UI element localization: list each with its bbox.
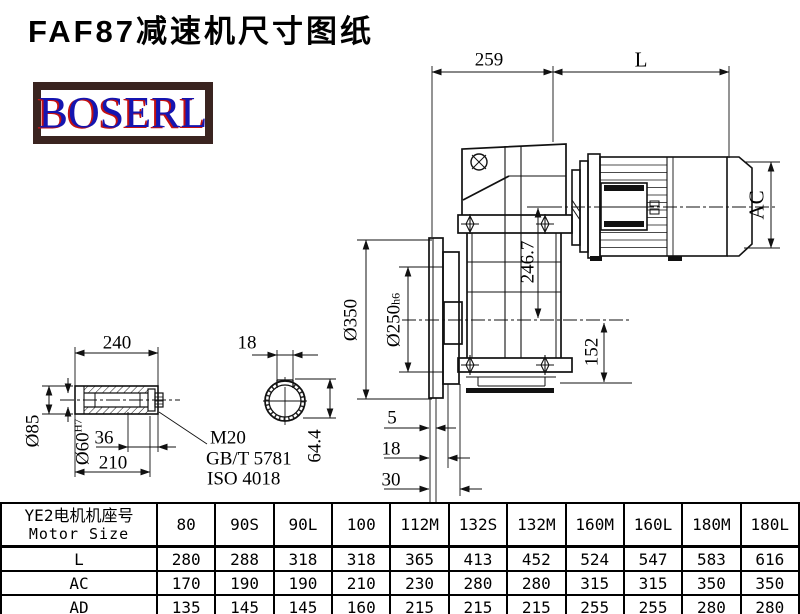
spec-value-cell: 280: [682, 595, 740, 614]
spec-table-row: AC170190190210230280280315315350350: [1, 571, 799, 595]
dim-bore-diameter: Ø60H7: [73, 419, 92, 465]
spec-value-cell: 215: [449, 595, 507, 614]
spec-value-cell: 280: [157, 547, 215, 572]
spec-value-cell: 255: [624, 595, 682, 614]
label-bolt-standard-iso: ISO 4018: [207, 470, 280, 489]
spec-value-cell: 280: [449, 571, 507, 595]
motor-size-header-cn: YE2电机机座号: [2, 506, 156, 525]
spec-value-cell: 280: [741, 595, 799, 614]
dim-flange-step3: 30: [382, 471, 401, 490]
spec-value-cell: 230: [390, 571, 448, 595]
motor-size-column-header: 80: [157, 503, 215, 547]
motor-size-column-header: 160L: [624, 503, 682, 547]
spec-value-cell: 190: [215, 571, 273, 595]
motor-size-column-header: 132S: [449, 503, 507, 547]
motor-size-column-header: 132M: [507, 503, 565, 547]
motor-size-column-header: 100: [332, 503, 390, 547]
spec-value-cell: 280: [507, 571, 565, 595]
motor-size-column-header: 180L: [741, 503, 799, 547]
spec-table-row: L280288318318365413452524547583616: [1, 547, 799, 572]
spec-value-cell: 315: [624, 571, 682, 595]
spec-value-cell: 318: [274, 547, 332, 572]
spec-row-label: AC: [1, 571, 157, 595]
dim-housing-width: 259: [475, 51, 504, 70]
spec-value-cell: 365: [390, 547, 448, 572]
dim-spigot-diameter: Ø250h6: [385, 293, 404, 347]
dim-motor-diameter: AC: [747, 190, 768, 219]
spec-value-cell: 215: [390, 595, 448, 614]
spec-value-cell: 350: [741, 571, 799, 595]
spec-table-body: L280288318318365413452524547583616AC1701…: [1, 547, 799, 614]
spec-value-cell: 583: [682, 547, 740, 572]
spec-table-row: AD135145145160215215215255255280280: [1, 595, 799, 614]
spec-value-cell: 318: [332, 547, 390, 572]
spec-value-cell: 170: [157, 571, 215, 595]
dim-output-axis-height: 152: [583, 338, 602, 367]
motor-size-column-header: 180M: [682, 503, 740, 547]
spec-value-cell: 616: [741, 547, 799, 572]
dim-input-axis-height: 246.7: [519, 241, 538, 284]
spec-value-cell: 350: [682, 571, 740, 595]
label-bolt-spec: M20: [210, 429, 246, 448]
spec-value-cell: 547: [624, 547, 682, 572]
dim-flange-diameter: Ø350: [342, 299, 361, 341]
dim-bolt-depth: 36: [95, 429, 114, 448]
spec-value-cell: 210: [332, 571, 390, 595]
dim-shaft-outer-diameter: Ø85: [24, 415, 43, 448]
motor-size-column-header: 90L: [274, 503, 332, 547]
dim-key-height: 64.4: [306, 429, 325, 462]
dim-hub-length: 210: [99, 454, 128, 473]
spec-value-cell: 452: [507, 547, 565, 572]
spec-row-label: AD: [1, 595, 157, 614]
dim-key-width: 18: [238, 334, 257, 353]
label-bolt-standard-gb: GB/T 5781: [206, 450, 292, 469]
spec-table-head-row: YE2电机机座号 Motor Size 8090S90L100112M132S1…: [1, 503, 799, 547]
drawing-sheet: FAF87减速机尺寸图纸 BOSERL: [0, 0, 800, 614]
spec-row-label: L: [1, 547, 157, 572]
motor-size-header-cell: YE2电机机座号 Motor Size: [1, 503, 157, 547]
spec-value-cell: 413: [449, 547, 507, 572]
spec-value-cell: 524: [566, 547, 624, 572]
dim-motor-length: L: [635, 50, 648, 71]
dim-shaft-length: 240: [103, 334, 132, 353]
motor-size-column-header: 90S: [215, 503, 273, 547]
spec-value-cell: 215: [507, 595, 565, 614]
spec-value-cell: 255: [566, 595, 624, 614]
spec-value-cell: 145: [215, 595, 273, 614]
spec-value-cell: 160: [332, 595, 390, 614]
dim-flange-step2: 18: [382, 440, 401, 459]
spec-value-cell: 145: [274, 595, 332, 614]
motor-size-column-header: 112M: [390, 503, 448, 547]
spec-value-cell: 135: [157, 595, 215, 614]
motor-size-header-en: Motor Size: [2, 525, 156, 543]
motor-spec-table: YE2电机机座号 Motor Size 8090S90L100112M132S1…: [0, 502, 800, 614]
dim-flange-step1: 5: [387, 409, 397, 428]
motor-size-column-header: 160M: [566, 503, 624, 547]
spec-value-cell: 190: [274, 571, 332, 595]
spec-value-cell: 288: [215, 547, 273, 572]
spec-value-cell: 315: [566, 571, 624, 595]
